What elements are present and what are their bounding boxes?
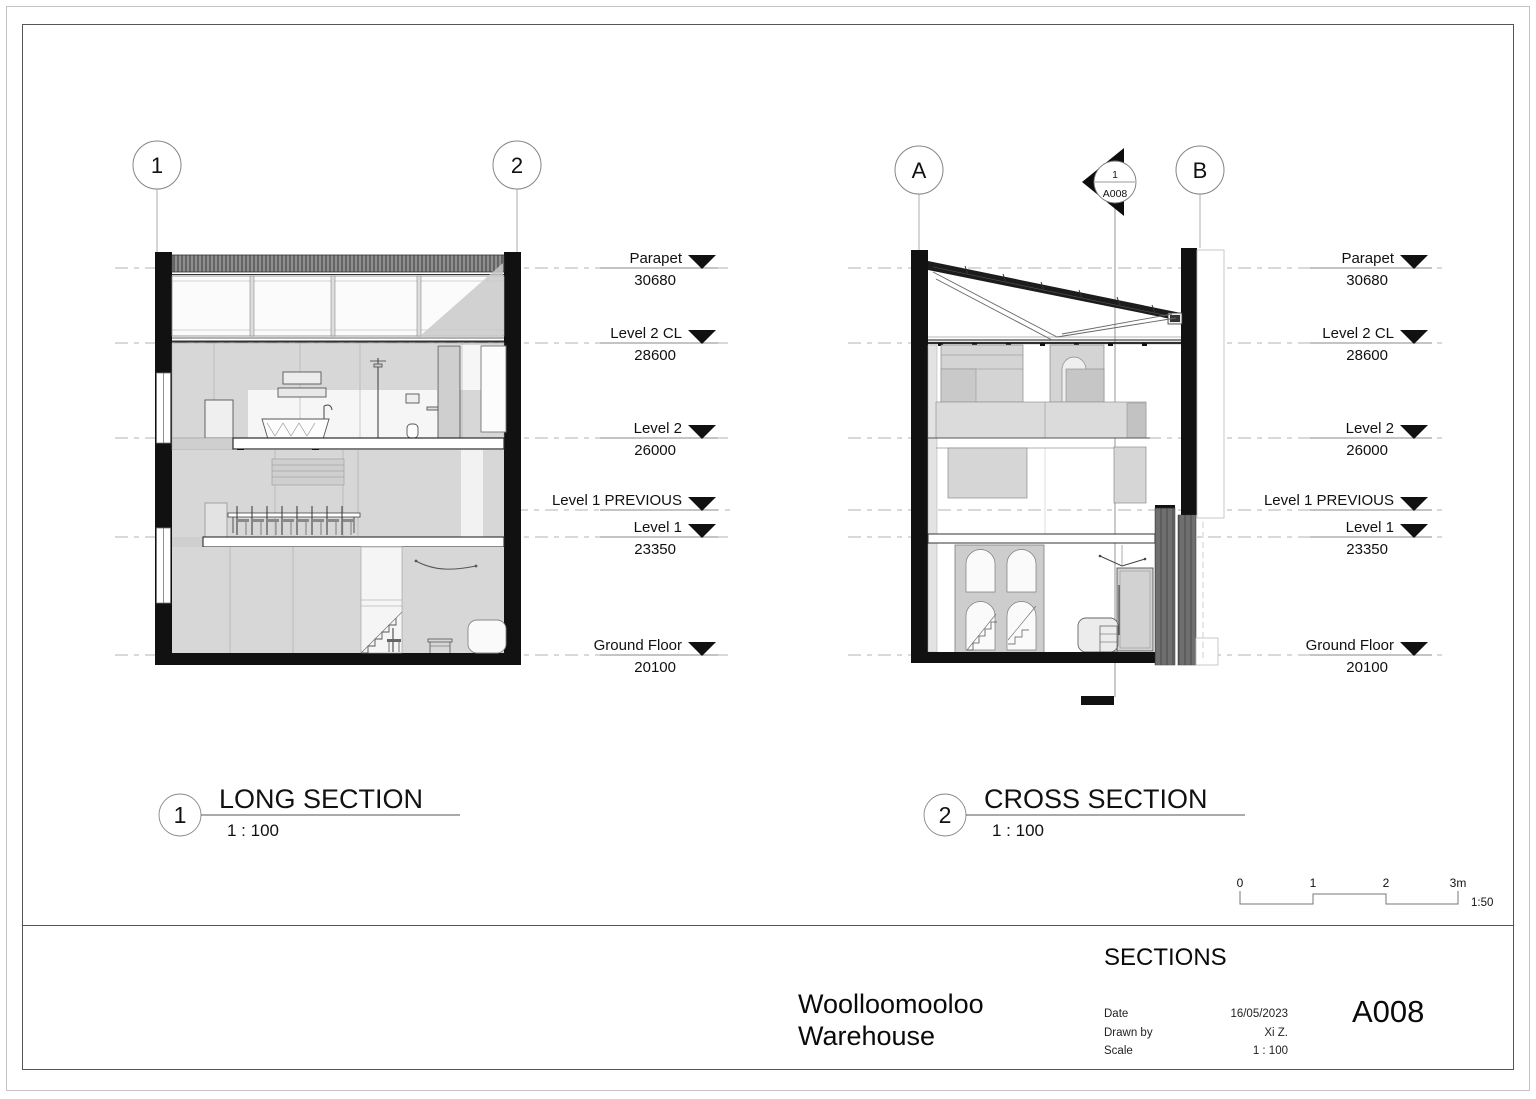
level-marker: Ground Floor 20100	[594, 637, 718, 676]
scale-bar-tick: 0	[1237, 876, 1244, 890]
view-title: LONG SECTION	[219, 784, 423, 814]
level-label: Ground Floor	[1306, 637, 1394, 654]
level-marker: Level 2 26000	[1310, 420, 1432, 459]
level-marker-icon	[688, 642, 716, 656]
level-marker: Level 1 PREVIOUS	[1264, 492, 1432, 511]
scale-bar-tick: 3m	[1450, 876, 1467, 890]
level-elevation: 23350	[634, 541, 676, 558]
grid-bubble-1-label: 1	[151, 153, 163, 178]
level-marker-icon	[688, 255, 716, 269]
field-label-date: Date	[1104, 1008, 1128, 1020]
level-label: Ground Floor	[594, 637, 682, 654]
level-elevation: 28600	[1346, 347, 1388, 364]
section-marker-number: 1	[1112, 170, 1118, 181]
grid-bubble-2-label: 2	[511, 153, 523, 178]
section-marker-sheet: A008	[1103, 188, 1128, 200]
title-block-divider	[23, 925, 1513, 926]
level-elevation: 28600	[634, 347, 676, 364]
long-section-view-title: 1 LONG SECTION 1 : 100	[159, 784, 460, 840]
level-marker: Parapet 30680	[600, 250, 718, 289]
level-label: Level 2 CL	[1322, 325, 1394, 342]
cross-section-drawing: A B 1 A008	[895, 146, 1224, 705]
level-marker-icon	[1400, 425, 1428, 439]
level-elevation: 20100	[634, 659, 676, 676]
level-elevation: 20100	[1346, 659, 1388, 676]
level-label: Level 1 PREVIOUS	[1264, 492, 1394, 509]
scale-bar-tick: 2	[1383, 876, 1390, 890]
level-label: Level 1 PREVIOUS	[552, 492, 682, 509]
level-marker: Level 2 CL 28600	[1310, 325, 1432, 364]
sheet-number: A008	[1352, 994, 1452, 1030]
project-name: Woolloomooloo Warehouse	[798, 988, 984, 1052]
level-marker: Level 2 26000	[600, 420, 718, 459]
level-marker-icon	[1400, 497, 1428, 511]
scale-bar: 0 1 2 3m 1:50	[1237, 876, 1494, 909]
level-label: Parapet	[629, 250, 682, 267]
scale-bar-tick: 1	[1310, 876, 1317, 890]
field-value-scale: 1 : 100	[1160, 1045, 1288, 1057]
level-label: Level 1	[1346, 519, 1394, 536]
grid-bubble-a-label: A	[912, 158, 927, 183]
field-value-drawn-by: Xi Z.	[1160, 1027, 1288, 1039]
level-marker: Ground Floor 20100	[1306, 637, 1432, 676]
level-elevation: 26000	[1346, 442, 1388, 459]
level-markers-long-section: Parapet 30680 Level 2 CL 28600 Level 2 2…	[552, 250, 718, 676]
field-label-scale: Scale	[1104, 1045, 1133, 1057]
level-marker-icon	[1400, 642, 1428, 656]
drawing-area: 1 2	[0, 0, 1536, 925]
level-marker: Level 1 PREVIOUS	[552, 492, 718, 511]
sheet-title: SECTIONS	[1104, 944, 1227, 972]
level-marker-icon	[688, 330, 716, 344]
field-value-date: 16/05/2023	[1160, 1008, 1288, 1020]
level-label: Level 2	[634, 420, 682, 437]
grid-bubble-b-label: B	[1193, 158, 1208, 183]
level-label: Level 2 CL	[610, 325, 682, 342]
level-marker-icon	[688, 524, 716, 538]
level-marker-icon	[688, 425, 716, 439]
level-label: Level 2	[1346, 420, 1394, 437]
level-label: Parapet	[1341, 250, 1394, 267]
view-number: 2	[939, 802, 952, 828]
level-marker-icon	[1400, 255, 1428, 269]
level-elevation: 23350	[1346, 541, 1388, 558]
level-marker: Level 2 CL 28600	[600, 325, 718, 364]
level-elevation: 26000	[634, 442, 676, 459]
level-marker-icon	[688, 497, 716, 511]
level-marker-icon	[1400, 524, 1428, 538]
cross-ground-furniture	[1078, 545, 1153, 652]
view-title: CROSS SECTION	[984, 784, 1208, 814]
project-name-line1: Woolloomooloo	[798, 988, 984, 1020]
cross-section-view-title: 2 CROSS SECTION 1 : 100	[924, 784, 1245, 840]
level-marker: Level 1 23350	[600, 519, 718, 558]
view-scale: 1 : 100	[992, 821, 1044, 840]
level-marker-icon	[1400, 330, 1428, 344]
field-label-drawn-by: Drawn by	[1104, 1027, 1153, 1039]
view-scale: 1 : 100	[227, 821, 279, 840]
project-name-line2: Warehouse	[798, 1020, 984, 1052]
level-marker: Level 1 23350	[1310, 519, 1432, 558]
scale-bar-ratio: 1:50	[1471, 897, 1493, 909]
level-label: Level 1	[634, 519, 682, 536]
level-marker: Parapet 30680	[1310, 250, 1432, 289]
level-markers-cross-section: Parapet 30680 Level 2 CL 28600 Level 2 2…	[1264, 250, 1432, 676]
arched-wall	[955, 545, 1044, 653]
level-elevation: 30680	[634, 272, 676, 289]
view-number: 1	[174, 802, 187, 828]
long-section-drawing: 1 2	[133, 141, 541, 665]
level-elevation: 30680	[1346, 272, 1388, 289]
